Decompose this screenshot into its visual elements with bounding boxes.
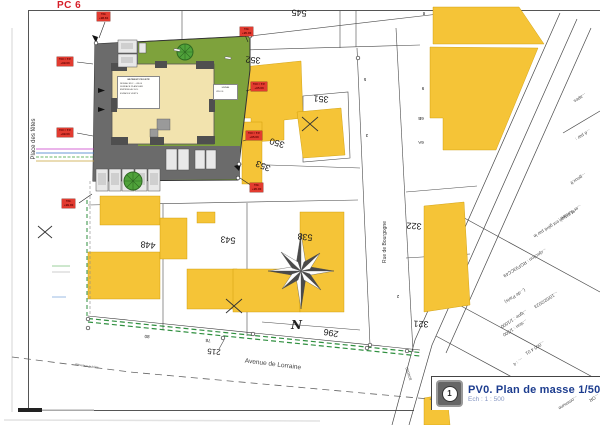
- house-number: 3: [365, 133, 368, 138]
- road-distance: 80: [144, 334, 150, 339]
- elevation-label: T.N = T.F+95.00: [246, 131, 262, 140]
- street-label-place-des-fetes: Place des fêtes: [31, 118, 37, 159]
- house-number: 2: [396, 294, 399, 299]
- elevation-value: +95.00: [242, 32, 251, 36]
- parcel-number: 545: [291, 7, 307, 18]
- parcel-number: 538: [297, 231, 313, 243]
- elevation-label: T.N = T.F+99.00: [57, 57, 73, 66]
- parcel-number: 321: [413, 319, 429, 330]
- elevation-label: T.N.+95.00: [250, 183, 263, 192]
- elevation-value: +99.00: [59, 62, 71, 66]
- utility-note: Réseaux publics: [75, 362, 99, 369]
- parcel-number: 352: [245, 54, 261, 65]
- parcel-number: 322: [406, 220, 422, 231]
- doc-code: PC 6: [57, 0, 81, 11]
- elevation-label: T.N.+99.00: [62, 199, 75, 208]
- tree-icon: [124, 172, 142, 190]
- elevation-value: +95.00: [252, 188, 261, 192]
- building-info-box: BÂTIMENT PROJETÉ NIVEAU RDC : +99.00 SUR…: [117, 76, 160, 109]
- elevation-value: +98.81: [99, 17, 108, 21]
- site-plan-drawing: 545 352 351 350 353 322 321 296 538 543 …: [0, 0, 600, 425]
- annex-info-box: LOCAL VÉLOS: [213, 84, 238, 100]
- project-site: [92, 35, 250, 191]
- annex-info-line: VÉLOS: [216, 91, 235, 94]
- elevation-value: +99.00: [64, 204, 73, 208]
- road-distance: 78: [205, 338, 211, 343]
- street-label-avenue-de-lorraine: Avenue de Lorraine: [244, 358, 301, 372]
- building-info-line: ESPACES VERTS: [120, 93, 157, 96]
- street-label-rue-de-bourgogne: Rue de Bourgogne: [382, 221, 388, 263]
- elevation-value: +95.00: [248, 136, 260, 140]
- parcel-number: 215: [206, 346, 221, 356]
- scale-bar: [18, 408, 94, 412]
- house-number: 6A: [418, 140, 424, 145]
- building-info-line: BÂTIMENT PROJETÉ: [120, 79, 157, 82]
- house-number: 5: [363, 77, 366, 82]
- plan-title: PV0. Plan de masse 1/500: [468, 384, 600, 396]
- elevation-label: T.N = T.F+99.00: [57, 128, 73, 137]
- parcel-number: 448: [140, 239, 156, 251]
- sheet-index-icon: 1: [436, 380, 463, 407]
- annex-info-line: LOCAL: [216, 87, 235, 90]
- parcel-number: 543: [220, 234, 236, 246]
- house-number: 8: [422, 11, 425, 16]
- compass-north-letter: N: [290, 318, 303, 332]
- elevation-label: T.N.+98.81: [97, 12, 110, 21]
- elevation-label: T.N = T.F+95.00: [251, 82, 267, 91]
- sheet-index-number: 1: [442, 386, 458, 402]
- elevation-value: +99.00: [59, 133, 71, 137]
- house-number: 6B: [418, 116, 424, 121]
- elevation-value: +95.00: [253, 87, 265, 91]
- elevation-label: T.N.+95.00: [240, 27, 253, 36]
- plan-sheet: 545 352 351 350 353 322 321 296 538 543 …: [0, 0, 600, 425]
- parcel-number: 351: [313, 93, 329, 104]
- road-ref-number: 824080: [404, 366, 413, 381]
- plan-scale: Ech : 1 : 500: [468, 396, 600, 403]
- title-block: 1 PV0. Plan de masse 1/500 Ech : 1 : 500: [431, 376, 600, 410]
- house-number: 9: [421, 86, 424, 91]
- tree-icon: [177, 44, 193, 60]
- parcel-number: 296: [323, 327, 340, 339]
- title-block-text: PV0. Plan de masse 1/500 Ech : 1 : 500: [468, 384, 600, 403]
